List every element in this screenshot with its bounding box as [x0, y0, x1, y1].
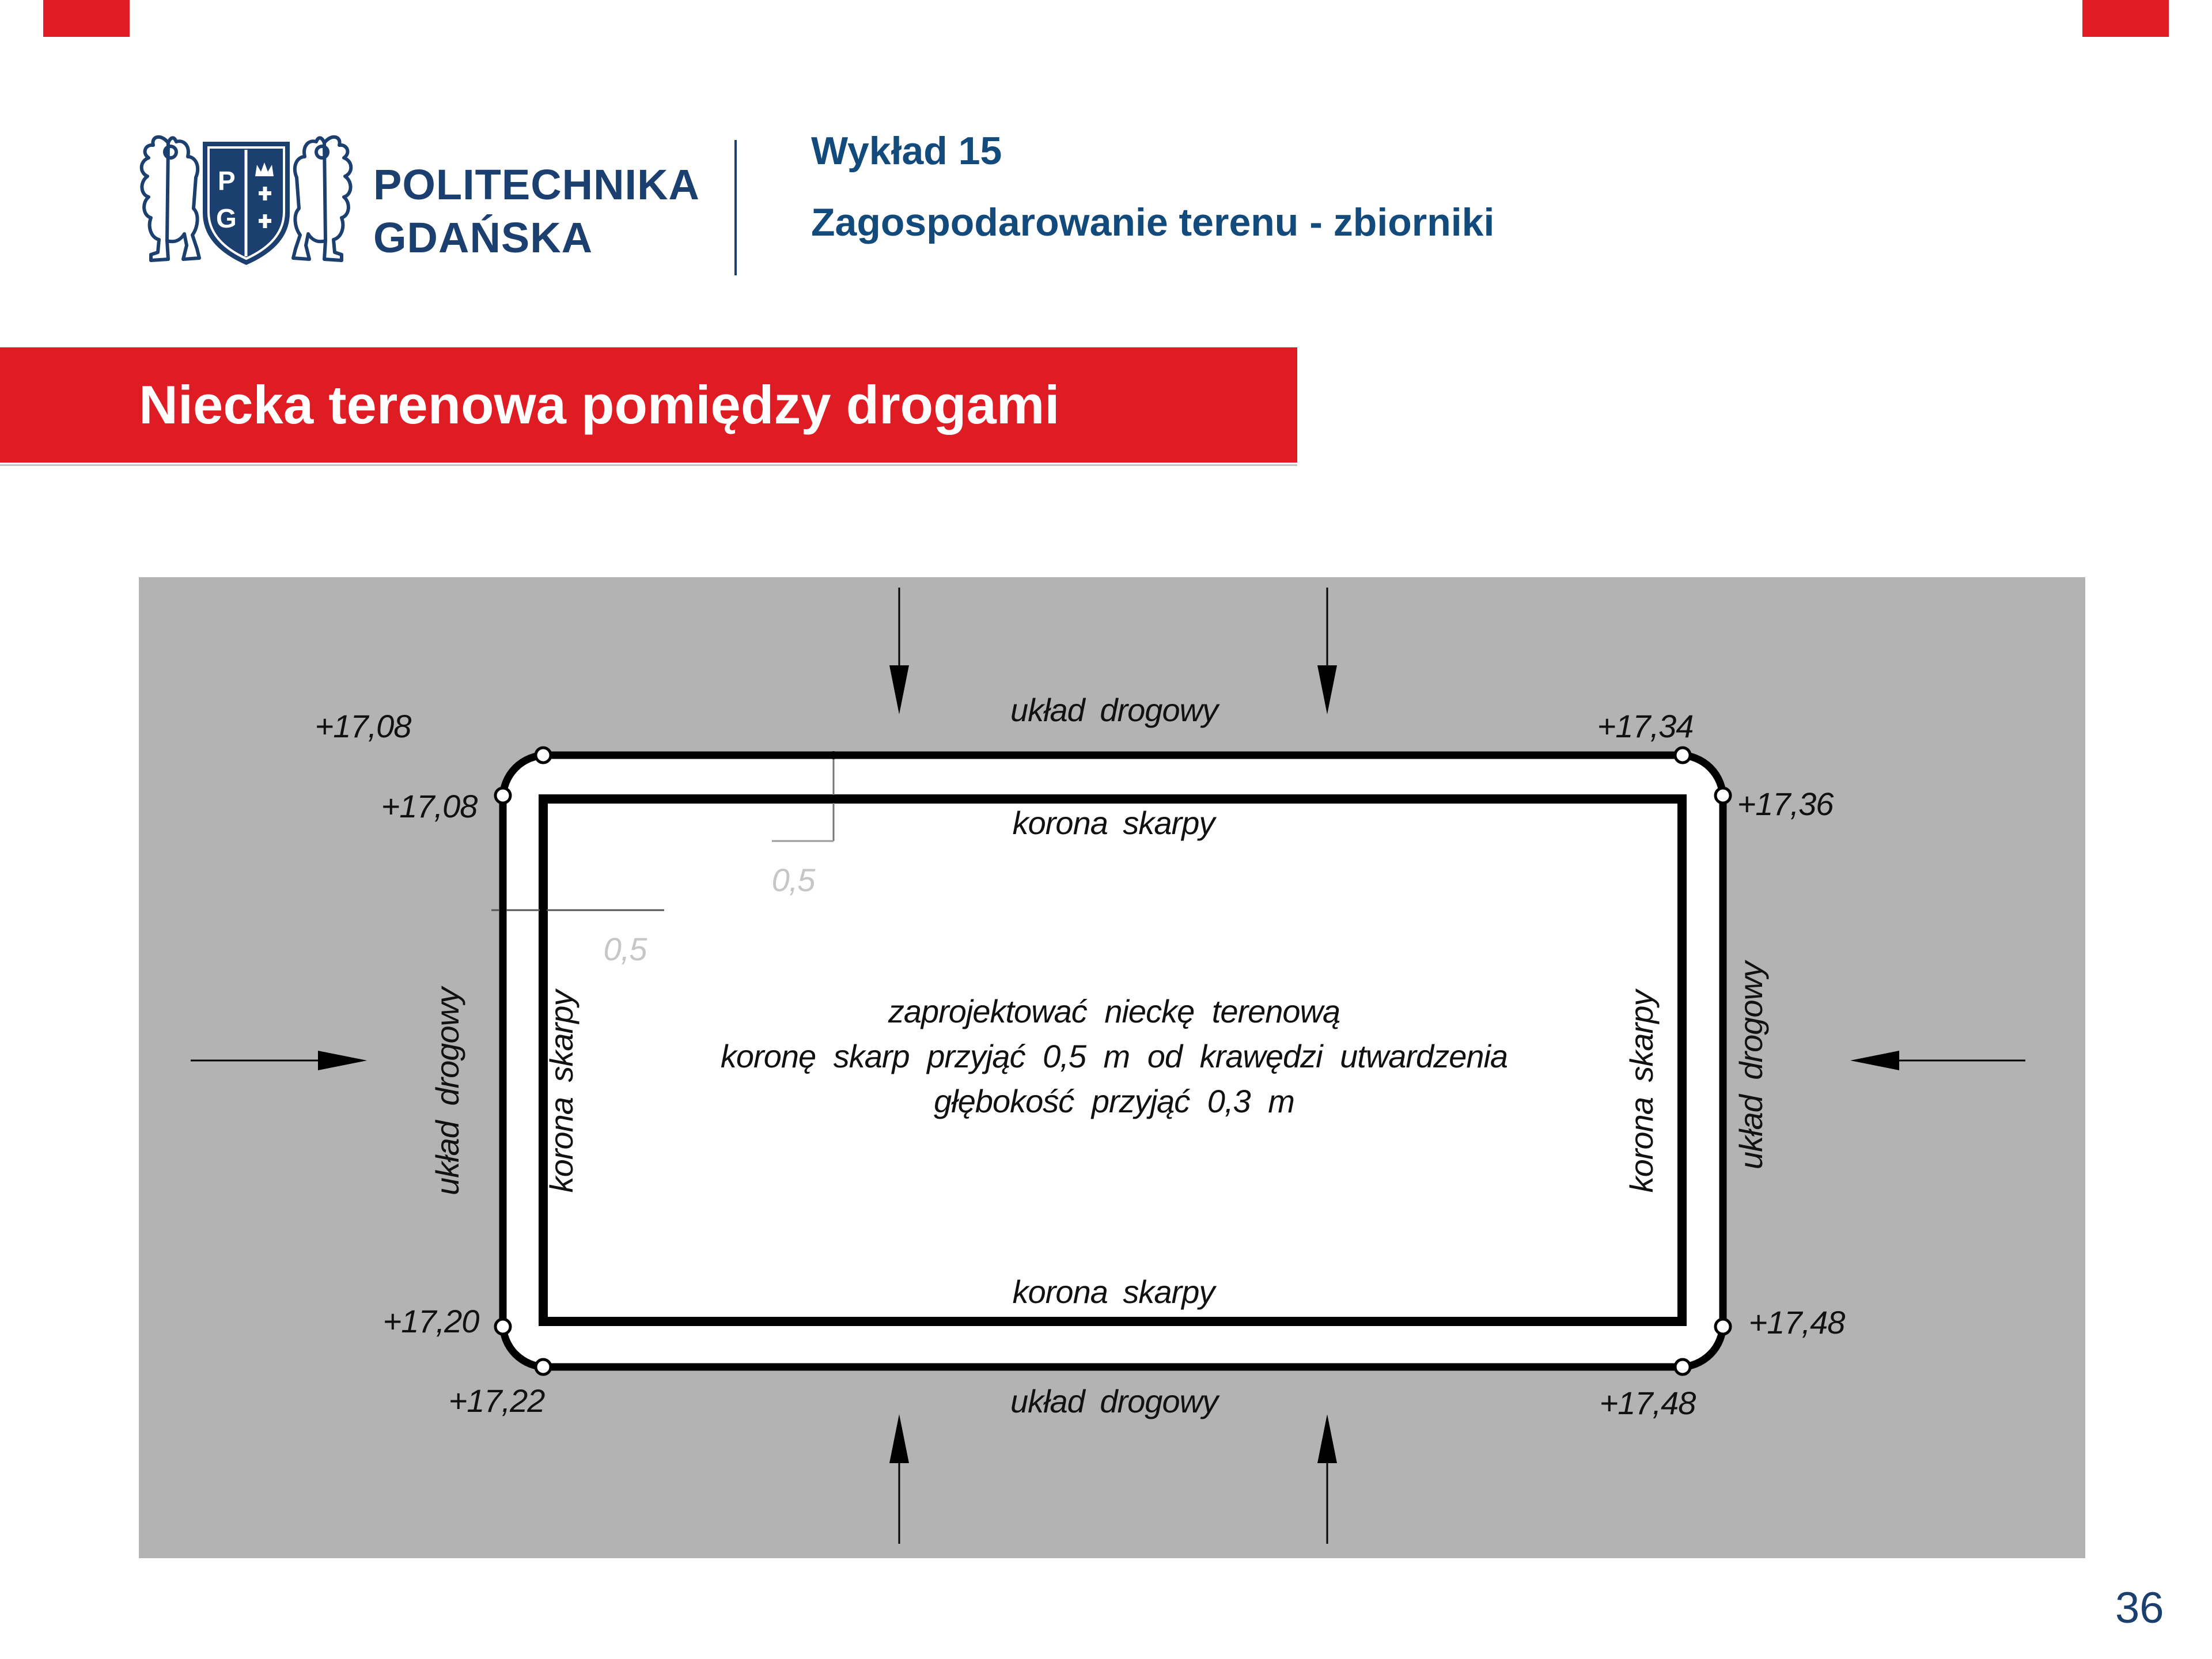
red-corner-accent-left: [43, 0, 130, 37]
shield-letter-p: P: [218, 166, 236, 196]
elevation-bottom-left-upper: +17,20: [383, 1303, 480, 1339]
label-road-bottom: układ drogowy: [1010, 1383, 1220, 1419]
elevation-top-left-lower: +17,08: [381, 788, 478, 824]
design-note-line3: głębokość przyjąć 0,3 m: [934, 1083, 1294, 1119]
lecture-number: Wykład 15: [811, 131, 1002, 171]
elevation-bottom-right-lower: +17,48: [1600, 1385, 1696, 1421]
university-logo: P G: [132, 127, 360, 279]
shield-icon: P G: [203, 142, 290, 265]
label-crest-top: korona skarpy: [1013, 805, 1217, 841]
site-plan-diagram: 0,5 0,5: [139, 577, 2085, 1558]
slide-title-banner: Niecka terenowa pomiędzy drogami: [0, 347, 1297, 463]
lion-supporter-right-icon: [293, 137, 351, 260]
lion-supporter-left-icon: [142, 137, 199, 260]
elevation-bottom-left-lower: +17,22: [449, 1382, 546, 1419]
design-note-line2: koronę skarp przyjąć 0,5 m od krawędzi u…: [721, 1038, 1508, 1074]
label-crest-bottom: korona skarpy: [1013, 1274, 1217, 1310]
design-note-line1: zaprojektować nieckę terenową: [888, 993, 1340, 1029]
elevation-top-right-upper: +17,34: [1597, 708, 1694, 744]
label-road-top: układ drogowy: [1010, 692, 1220, 728]
dimension-top-value: 0,5: [772, 862, 816, 898]
label-crest-right: korona skarpy: [1623, 988, 1660, 1193]
university-name-line2: GDAŃSKA: [373, 217, 593, 259]
university-name-line1: POLITECHNIKA: [373, 164, 700, 206]
elevation-top-right-lower: +17,36: [1737, 786, 1835, 822]
header-divider: [734, 140, 737, 275]
label-road-left: układ drogowy: [429, 986, 465, 1195]
elevation-top-left-upper: +17,08: [315, 708, 412, 744]
dimension-left-value: 0,5: [604, 931, 648, 967]
elevation-bottom-right-upper: +17,48: [1749, 1304, 1846, 1340]
label-crest-left: korona skarpy: [543, 988, 579, 1193]
red-corner-accent-right: [2082, 0, 2169, 37]
shield-letter-g: G: [216, 203, 237, 233]
label-road-right: układ drogowy: [1733, 960, 1769, 1169]
lecture-topic: Zagospodarowanie terenu - zbiorniki: [811, 203, 1494, 242]
slide-title: Niecka terenowa pomiędzy drogami: [139, 347, 1059, 463]
page-number: 36: [2115, 1583, 2164, 1633]
banner-underline: [0, 464, 1297, 466]
